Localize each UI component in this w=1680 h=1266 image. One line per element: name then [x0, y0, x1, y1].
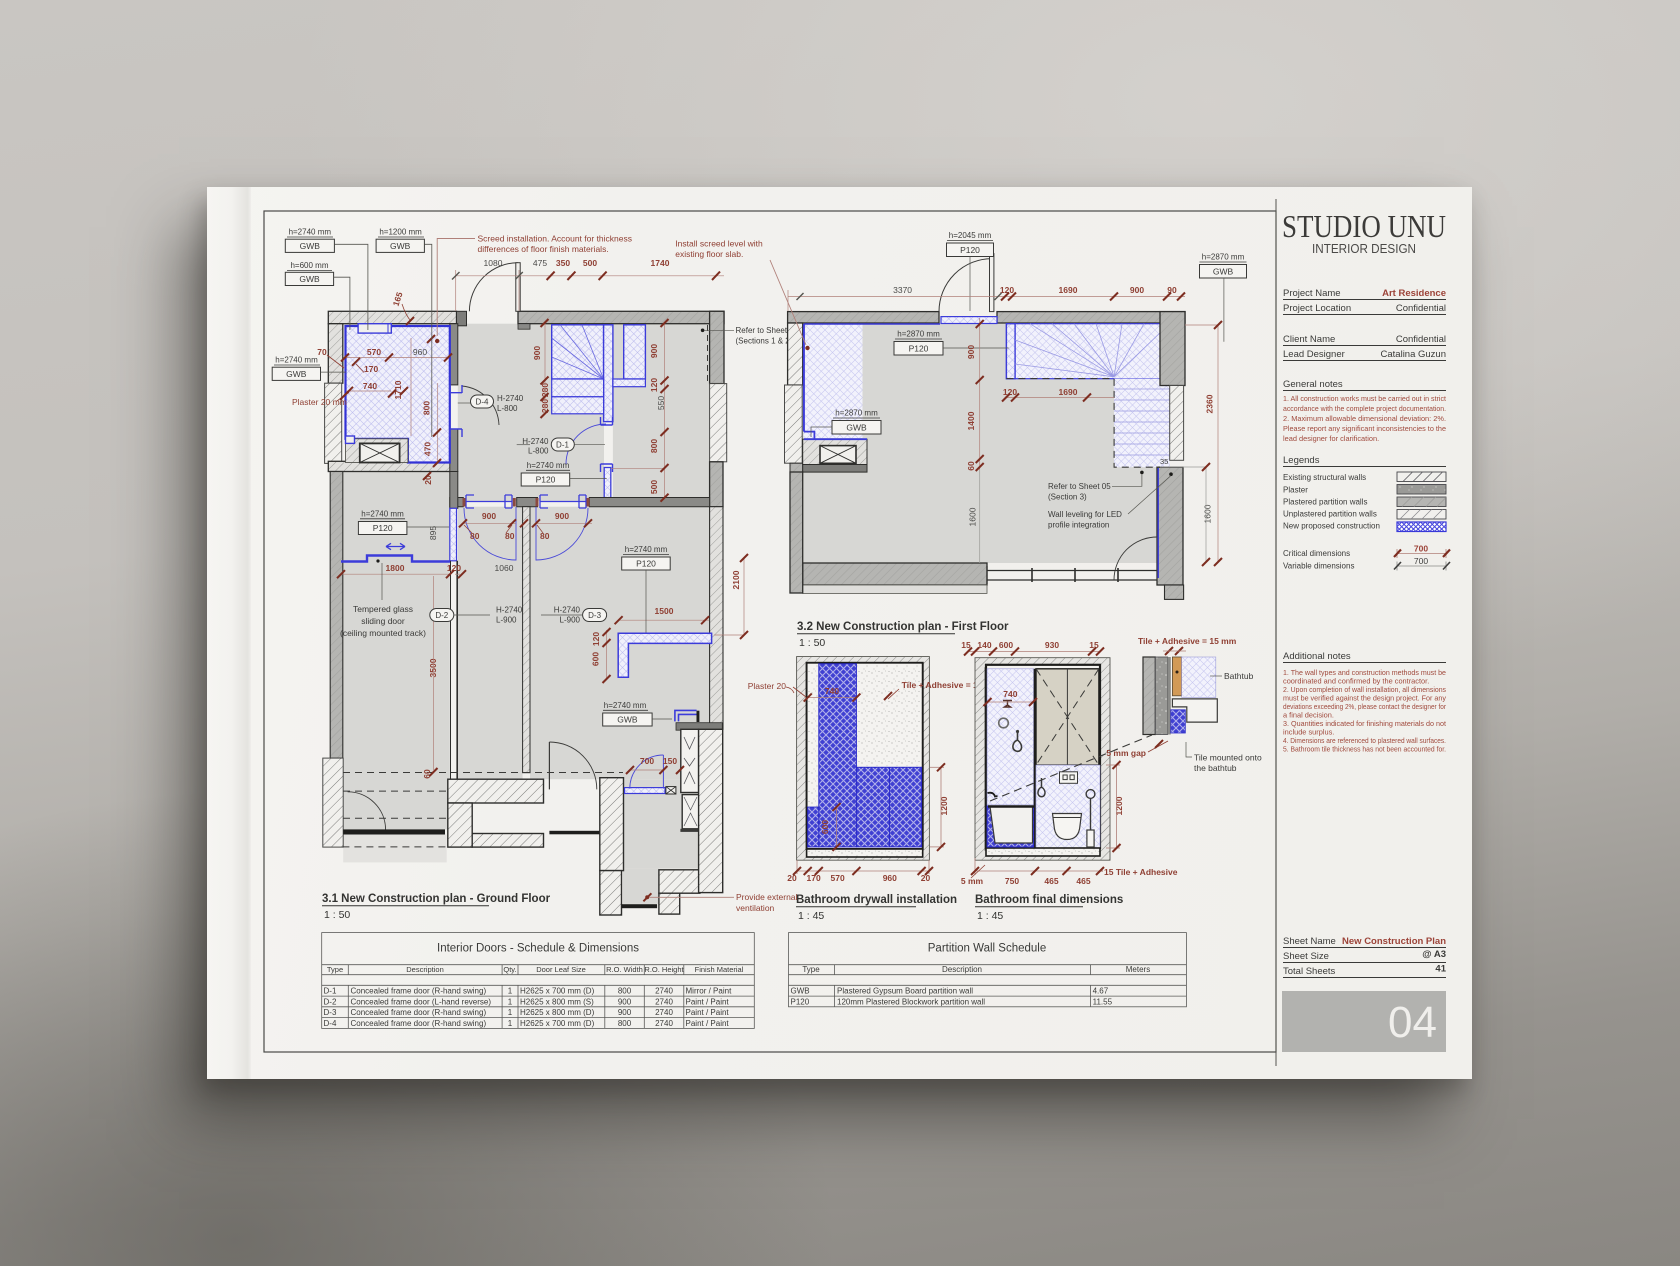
svg-text:500: 500 — [583, 258, 597, 268]
svg-text:H2625 x 800 mm (S): H2625 x 800 mm (S) — [520, 997, 594, 1006]
svg-text:Project Name: Project Name — [1283, 288, 1341, 299]
svg-text:D-1: D-1 — [556, 441, 569, 450]
svg-text:1600: 1600 — [968, 507, 978, 526]
svg-text:Project Location: Project Location — [1283, 303, 1351, 314]
svg-text:Plaster: Plaster — [1283, 486, 1308, 495]
svg-text:Wall leveling for LED: Wall leveling for LED — [1048, 510, 1122, 519]
svg-text:1: 1 — [508, 987, 513, 996]
svg-text:2740: 2740 — [655, 1019, 673, 1028]
svg-text:Variable dimensions: Variable dimensions — [1283, 562, 1354, 571]
svg-text:Type: Type — [802, 965, 820, 974]
svg-text:500: 500 — [649, 480, 659, 494]
svg-text:P120: P120 — [960, 245, 980, 255]
svg-text:R.O. Width: R.O. Width — [606, 965, 643, 974]
svg-text:Sheet Size: Sheet Size — [1283, 951, 1329, 962]
svg-text:GWB: GWB — [390, 241, 411, 251]
svg-text:35: 35 — [1160, 457, 1168, 466]
svg-text:Tempered glass: Tempered glass — [353, 604, 413, 614]
svg-text:895: 895 — [428, 526, 438, 540]
svg-text:h=2740 mm: h=2740 mm — [527, 461, 570, 470]
svg-text:2740: 2740 — [655, 1008, 673, 1017]
svg-text:5. Bathroom tile thickness has: 5. Bathroom tile thickness has not been … — [1283, 745, 1446, 754]
svg-text:GWB: GWB — [1213, 267, 1234, 277]
svg-text:740: 740 — [1003, 689, 1017, 699]
svg-text:Lead Designer: Lead Designer — [1283, 349, 1345, 360]
svg-text:120: 120 — [649, 378, 659, 392]
svg-text:Sheet Name: Sheet Name — [1283, 936, 1336, 947]
svg-text:Partition Wall Schedule: Partition Wall Schedule — [928, 943, 1046, 955]
svg-text:GWB: GWB — [617, 715, 638, 725]
svg-text:Qty.: Qty. — [503, 965, 516, 974]
svg-text:P120: P120 — [536, 475, 556, 485]
svg-text:D-3: D-3 — [324, 1008, 337, 1017]
svg-text:Plaster 20 mm: Plaster 20 mm — [292, 397, 347, 407]
svg-text:170: 170 — [364, 364, 378, 374]
svg-text:900: 900 — [618, 997, 632, 1006]
svg-text:P120: P120 — [909, 344, 929, 354]
svg-text:h=600 mm: h=600 mm — [290, 261, 328, 270]
svg-text:Refer to Sheet 05: Refer to Sheet 05 — [1048, 482, 1111, 491]
svg-text:465: 465 — [1076, 876, 1090, 886]
svg-text:5 mm gap: 5 mm gap — [1106, 748, 1146, 758]
svg-text:sliding door: sliding door — [361, 616, 405, 626]
svg-text:3.2 New Construction plan - Fi: 3.2 New Construction plan - First Floor — [797, 621, 1009, 633]
svg-text:900: 900 — [555, 511, 569, 521]
svg-text:(Sections 1 & 2): (Sections 1 & 2) — [736, 337, 793, 346]
svg-text:70: 70 — [317, 347, 327, 357]
svg-text:P120: P120 — [636, 559, 656, 569]
svg-text:Plastered partition walls: Plastered partition walls — [1283, 498, 1367, 507]
svg-text:L-900: L-900 — [560, 616, 581, 625]
svg-text:600: 600 — [591, 652, 601, 666]
svg-text:New proposed construction: New proposed construction — [1283, 522, 1380, 531]
svg-text:h=2870 mm: h=2870 mm — [1202, 253, 1245, 262]
svg-text:3370: 3370 — [893, 285, 912, 295]
svg-text:h=2740 mm: h=2740 mm — [289, 228, 332, 237]
svg-text:D-4: D-4 — [324, 1019, 337, 1028]
svg-text:1: 1 — [508, 1019, 513, 1028]
svg-text:900: 900 — [618, 1008, 632, 1017]
svg-text:(Section 3): (Section 3) — [1048, 493, 1087, 502]
svg-text:1500: 1500 — [655, 606, 674, 616]
svg-text:Mirror / Paint: Mirror / Paint — [686, 987, 733, 996]
svg-text:150: 150 — [663, 756, 677, 766]
svg-text:R.O. Height: R.O. Height — [644, 965, 684, 974]
svg-text:Description: Description — [942, 965, 982, 974]
svg-text:Concealed frame door (R-hand s: Concealed frame door (R-hand swing) — [351, 1008, 487, 1017]
svg-text:900: 900 — [649, 344, 659, 358]
svg-text:2360: 2360 — [1205, 394, 1215, 413]
svg-text:140: 140 — [977, 640, 991, 650]
svg-text:P120: P120 — [373, 523, 393, 533]
svg-text:Type: Type — [327, 965, 343, 974]
svg-text:Interior Doors - Schedule & Di: Interior Doors - Schedule & Dimensions — [437, 943, 639, 955]
svg-text:1690: 1690 — [1059, 387, 1078, 397]
svg-text:20: 20 — [787, 873, 797, 883]
svg-text:350: 350 — [556, 258, 570, 268]
svg-text:41: 41 — [1435, 964, 1446, 975]
svg-text:740: 740 — [825, 686, 839, 696]
svg-text:15 Tile + Adhesive: 15 Tile + Adhesive — [1104, 867, 1178, 877]
svg-text:GWB: GWB — [286, 369, 307, 379]
svg-text:Additional notes: Additional notes — [1283, 651, 1351, 662]
svg-text:GWB: GWB — [846, 423, 867, 433]
svg-text:470: 470 — [423, 442, 433, 456]
svg-text:@ A3: @ A3 — [1422, 949, 1446, 960]
svg-text:differences of floor finish ma: differences of floor finish materials. — [478, 244, 609, 254]
svg-text:Tile + Adhesive = 15 mm: Tile + Adhesive = 15 mm — [1138, 636, 1237, 646]
svg-text:04: 04 — [1388, 998, 1437, 1047]
svg-text:1400: 1400 — [966, 411, 976, 430]
svg-text:800: 800 — [618, 987, 632, 996]
svg-text:1. All construction works must: 1. All construction works must be carrie… — [1283, 394, 1446, 403]
svg-text:h=2740 mm: h=2740 mm — [361, 510, 404, 519]
svg-text:H2625 x 800 mm (D): H2625 x 800 mm (D) — [520, 1008, 595, 1017]
svg-text:Screed installation. Account f: Screed installation. Account for thickne… — [478, 234, 633, 244]
svg-text:Bathroom drywall installation: Bathroom drywall installation — [796, 894, 957, 906]
svg-text:2. Maximum allowable dimension: 2. Maximum allowable dimensional deviati… — [1283, 414, 1446, 423]
svg-text:Plaster 20: Plaster 20 — [748, 681, 787, 691]
svg-text:GWB: GWB — [300, 241, 321, 251]
svg-text:2740: 2740 — [655, 997, 673, 1006]
svg-text:lead designer for clarificatio: lead designer for clarification. — [1283, 434, 1379, 443]
svg-text:Bathroom final dimensions: Bathroom final dimensions — [975, 894, 1123, 906]
svg-text:900: 900 — [482, 511, 496, 521]
svg-text:H-2740: H-2740 — [496, 606, 523, 615]
svg-text:D-1: D-1 — [324, 987, 337, 996]
svg-text:960: 960 — [413, 347, 427, 357]
svg-text:2740: 2740 — [655, 987, 673, 996]
svg-text:1080: 1080 — [484, 258, 503, 268]
svg-text:120: 120 — [591, 632, 601, 646]
svg-text:Tile mounted onto: Tile mounted onto — [1194, 753, 1262, 763]
svg-text:General notes: General notes — [1283, 379, 1343, 390]
svg-text:750: 750 — [1005, 876, 1019, 886]
svg-text:2100: 2100 — [731, 570, 741, 589]
svg-text:New Construction Plan: New Construction Plan — [1342, 936, 1446, 947]
svg-text:Install screed level with: Install screed level with — [675, 239, 763, 249]
svg-text:900: 900 — [966, 345, 976, 359]
svg-text:570: 570 — [831, 873, 845, 883]
svg-text:Please report any significant: Please report any significant inconsiste… — [1283, 424, 1446, 433]
svg-text:D-2: D-2 — [324, 997, 337, 1006]
svg-text:Client Name: Client Name — [1283, 334, 1335, 345]
svg-text:800: 800 — [649, 439, 659, 453]
svg-text:P120: P120 — [791, 997, 810, 1006]
svg-text:1: 1 — [508, 1008, 513, 1017]
svg-text:L-800: L-800 — [497, 404, 518, 413]
svg-text:600: 600 — [999, 640, 1013, 650]
svg-text:Legends: Legends — [1283, 455, 1320, 466]
svg-text:740: 740 — [363, 381, 377, 391]
svg-text:Paint / Paint: Paint / Paint — [686, 997, 730, 1006]
svg-text:3.1 New Construction plan - Gr: 3.1 New Construction plan - Ground Floor — [322, 893, 551, 905]
svg-text:Concealed frame door (L-hand r: Concealed frame door (L-hand reverse) — [351, 997, 492, 1006]
svg-text:h=2870 mm: h=2870 mm — [897, 330, 940, 339]
svg-text:800: 800 — [618, 1019, 632, 1028]
svg-text:profile integration: profile integration — [1048, 521, 1109, 530]
svg-text:h=2740 mm: h=2740 mm — [625, 545, 668, 554]
svg-text:80: 80 — [540, 531, 550, 541]
svg-text:Confidential: Confidential — [1396, 334, 1446, 345]
svg-text:h=2045 mm: h=2045 mm — [949, 231, 992, 240]
svg-text:ventilation: ventilation — [736, 903, 775, 913]
svg-text:Description: Description — [406, 965, 444, 974]
svg-text:475: 475 — [533, 258, 547, 268]
svg-text:1: 1 — [508, 997, 513, 1006]
svg-text:Bathtub: Bathtub — [1224, 671, 1254, 681]
svg-text:800: 800 — [422, 401, 432, 415]
svg-text:accordance with the complete p: accordance with the complete project doc… — [1283, 404, 1446, 413]
svg-text:900: 900 — [1130, 285, 1144, 295]
svg-text:Total Sheets: Total Sheets — [1283, 966, 1336, 977]
svg-text:1 : 50: 1 : 50 — [324, 909, 350, 921]
svg-text:60: 60 — [966, 461, 976, 471]
svg-text:960: 960 — [883, 873, 897, 883]
svg-text:120: 120 — [1003, 387, 1017, 397]
svg-text:600: 600 — [820, 820, 830, 834]
svg-text:D-3: D-3 — [588, 611, 601, 620]
svg-text:700: 700 — [1414, 556, 1428, 566]
svg-text:h=2870 mm: h=2870 mm — [835, 409, 878, 418]
svg-text:H-2740: H-2740 — [497, 394, 524, 403]
svg-text:Concealed frame door (R-hand s: Concealed frame door (R-hand swing) — [351, 987, 487, 996]
svg-text:H2625 x 700 mm (D): H2625 x 700 mm (D) — [520, 1019, 595, 1028]
svg-text:h=2740 mm: h=2740 mm — [604, 701, 647, 710]
svg-text:Finish Material: Finish Material — [695, 965, 744, 974]
svg-text:Provide external: Provide external — [736, 892, 798, 902]
svg-text:Paint / Paint: Paint / Paint — [686, 1008, 730, 1017]
svg-text:465: 465 — [1044, 876, 1058, 886]
svg-text:1060: 1060 — [495, 563, 514, 573]
svg-text:1 : 45: 1 : 45 — [977, 910, 1003, 922]
svg-text:the bathtub: the bathtub — [1194, 763, 1237, 773]
svg-text:1740: 1740 — [651, 258, 670, 268]
svg-text:H-2740: H-2740 — [522, 437, 549, 446]
svg-text:Confidential: Confidential — [1396, 303, 1446, 314]
svg-text:STUDIO UNU: STUDIO UNU — [1282, 208, 1446, 244]
svg-text:120: 120 — [447, 563, 461, 573]
svg-text:1 : 50: 1 : 50 — [799, 637, 825, 649]
svg-text:h=1200 mm: h=1200 mm — [379, 228, 422, 237]
svg-text:Critical dimensions: Critical dimensions — [1283, 549, 1350, 558]
svg-text:GWB: GWB — [299, 274, 320, 284]
svg-text:930: 930 — [1045, 640, 1059, 650]
svg-text:1800: 1800 — [386, 563, 405, 573]
svg-text:5 mm: 5 mm — [961, 876, 984, 886]
svg-text:H-2740: H-2740 — [554, 606, 581, 615]
svg-text:1600: 1600 — [1203, 504, 1213, 523]
svg-text:Meters: Meters — [1126, 965, 1150, 974]
svg-text:1690: 1690 — [1059, 285, 1078, 295]
svg-text:Art Residence: Art Residence — [1382, 288, 1446, 299]
svg-text:900: 900 — [532, 346, 542, 360]
svg-text:Door Leaf Size: Door Leaf Size — [536, 965, 586, 974]
svg-text:Tile + Adhesive = 15: Tile + Adhesive = 15 — [902, 680, 983, 690]
svg-text:1200: 1200 — [939, 796, 949, 815]
svg-text:Plastered Gypsum Board partiti: Plastered Gypsum Board partition wall — [837, 987, 973, 996]
svg-text:h=2740 mm: h=2740 mm — [275, 356, 318, 365]
svg-text:Existing structural walls: Existing structural walls — [1283, 473, 1366, 482]
svg-text:700: 700 — [640, 756, 654, 766]
svg-text:700: 700 — [1414, 544, 1428, 554]
svg-text:D-4: D-4 — [476, 398, 489, 407]
svg-text:existing floor slab.: existing floor slab. — [675, 249, 743, 259]
svg-text:3500: 3500 — [428, 658, 438, 677]
svg-text:170: 170 — [807, 873, 821, 883]
svg-text:Unplastered partition walls: Unplastered partition walls — [1283, 510, 1377, 519]
svg-text:1200: 1200 — [1114, 796, 1124, 815]
svg-text:Catalina Guzun: Catalina Guzun — [1381, 349, 1446, 360]
svg-text:H2625 x 700 mm (D): H2625 x 700 mm (D) — [520, 987, 595, 996]
svg-text:L-800: L-800 — [528, 447, 549, 456]
svg-text:GWB: GWB — [791, 987, 810, 996]
svg-text:D-2: D-2 — [435, 611, 448, 620]
svg-text:INTERIOR DESIGN: INTERIOR DESIGN — [1312, 242, 1416, 256]
svg-text:Concealed frame door (R-hand s: Concealed frame door (R-hand swing) — [351, 1019, 487, 1028]
svg-text:L-900: L-900 — [496, 616, 517, 625]
svg-text:120mm Plastered Blockwork part: 120mm Plastered Blockwork partition wall — [837, 997, 985, 1006]
svg-text:570: 570 — [367, 347, 381, 357]
svg-text:(ceiling mounted track): (ceiling mounted track) — [340, 628, 426, 638]
svg-text:15: 15 — [961, 640, 971, 650]
svg-text:4.67: 4.67 — [1093, 987, 1109, 996]
svg-text:1 : 45: 1 : 45 — [798, 910, 824, 922]
svg-text:11.55: 11.55 — [1093, 997, 1113, 1006]
svg-text:Paint / Paint: Paint / Paint — [686, 1019, 730, 1028]
